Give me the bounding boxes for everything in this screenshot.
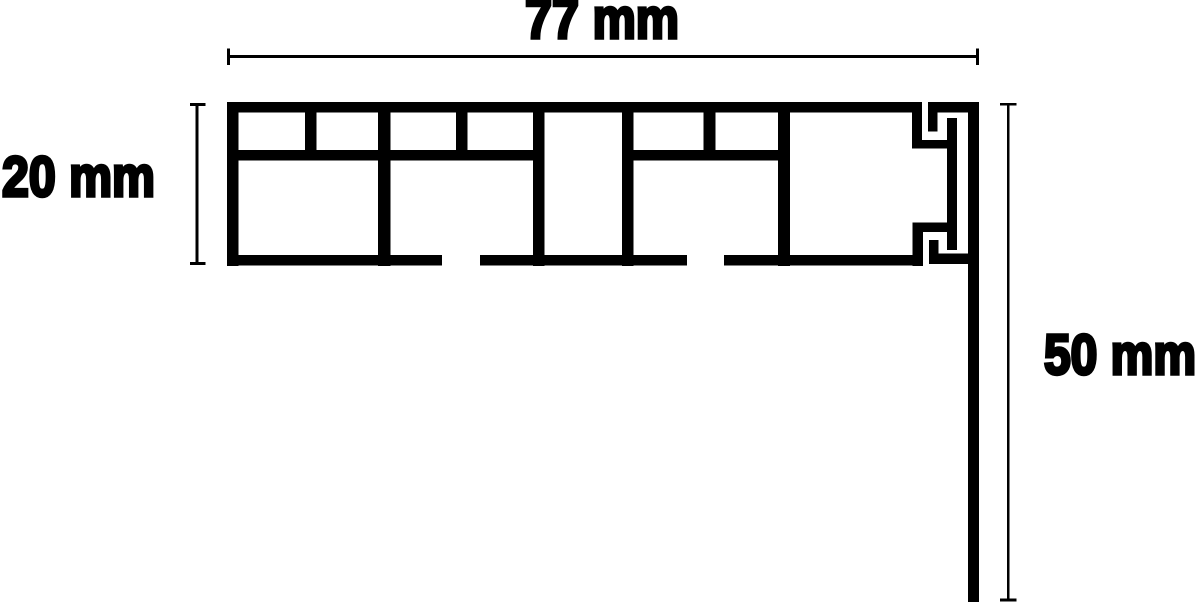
svg-text:77 mm: 77 mm — [525, 0, 679, 51]
svg-text:20 mm: 20 mm — [2, 145, 155, 209]
svg-text:50 mm: 50 mm — [1044, 323, 1196, 387]
